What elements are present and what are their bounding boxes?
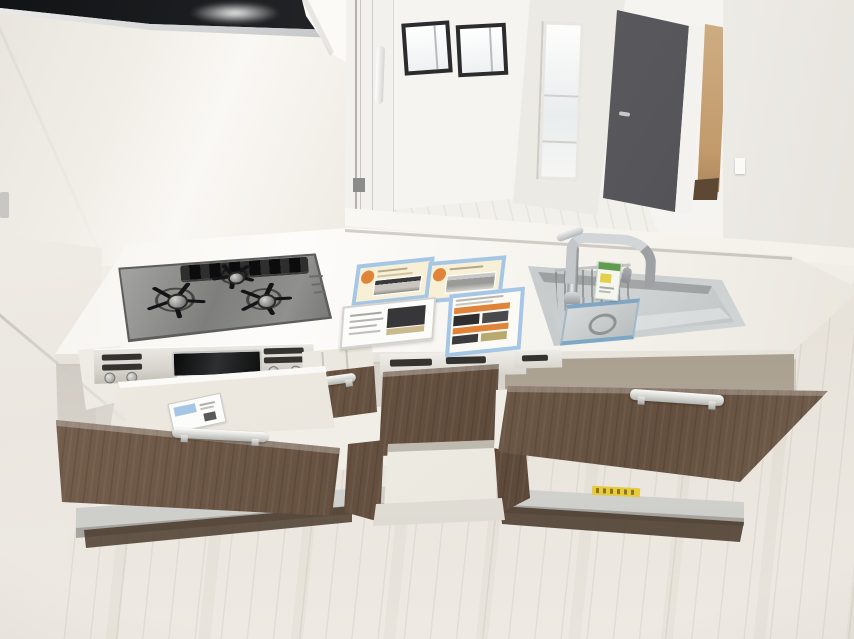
rail-vent-slot <box>390 359 432 367</box>
window-sash <box>489 28 493 72</box>
card-text-line <box>349 317 383 323</box>
card-text-line <box>349 324 377 329</box>
glass-door-latch <box>353 178 365 192</box>
rail-vent-slot <box>522 355 548 362</box>
card-photo <box>203 411 216 421</box>
glass-door-rail <box>355 0 357 232</box>
living-room-tall-window <box>538 21 583 180</box>
living-room-window-2 <box>456 23 509 78</box>
glass-door-handle <box>375 46 385 104</box>
card-text-line <box>200 405 214 410</box>
glass-door-rail <box>372 0 373 232</box>
living-room-window-1 <box>401 20 453 75</box>
pamphlet-photo <box>453 314 480 327</box>
tag-green-band <box>598 262 621 271</box>
rail-vent-slot <box>446 356 486 364</box>
left-wall-upper <box>0 0 350 266</box>
drain-ring <box>587 312 618 336</box>
drain-tray <box>560 298 640 345</box>
pamphlet-photo <box>452 334 478 345</box>
kitchen-photo <box>0 0 854 639</box>
light-switch <box>735 158 745 174</box>
right-cabinet-rail <box>514 349 562 368</box>
tag-text-line <box>599 286 614 290</box>
tag-text-line <box>599 290 611 293</box>
card-blue-band <box>173 403 196 416</box>
promo-pamphlet-vertical <box>445 287 525 358</box>
stove-control-slot <box>264 356 304 363</box>
label-print <box>596 488 636 495</box>
pamphlet-photo <box>481 331 507 342</box>
tag-yellow-patch <box>600 273 612 283</box>
faucet-base <box>564 292 580 304</box>
stove-control-slot <box>102 354 142 361</box>
window-sash <box>543 140 577 143</box>
cooktop-burner-left <box>145 279 205 320</box>
stove-control-slot <box>264 347 304 354</box>
window-sash <box>544 94 578 97</box>
sliding-glass-door-edge <box>345 0 394 232</box>
faucet-product-tag <box>594 261 622 301</box>
pamphlet-photo <box>482 310 509 323</box>
cooktop-burner-right <box>237 281 291 318</box>
pamphlet-badge <box>432 268 447 282</box>
near-wall-right <box>723 0 854 276</box>
pamphlet-text-line <box>449 265 483 270</box>
window-sash <box>433 25 438 69</box>
pamphlet-photo <box>372 275 422 296</box>
card-text-line <box>350 312 382 317</box>
stove-knob <box>104 372 115 383</box>
glass-panel-clamp <box>0 192 9 218</box>
card-text-line <box>349 330 381 335</box>
stove-control-slot <box>102 364 142 371</box>
glass-door-rail <box>360 0 361 232</box>
gas-cooktop <box>116 244 341 353</box>
hood-lamp-glow <box>190 2 280 24</box>
pamphlet-badge <box>360 270 375 285</box>
